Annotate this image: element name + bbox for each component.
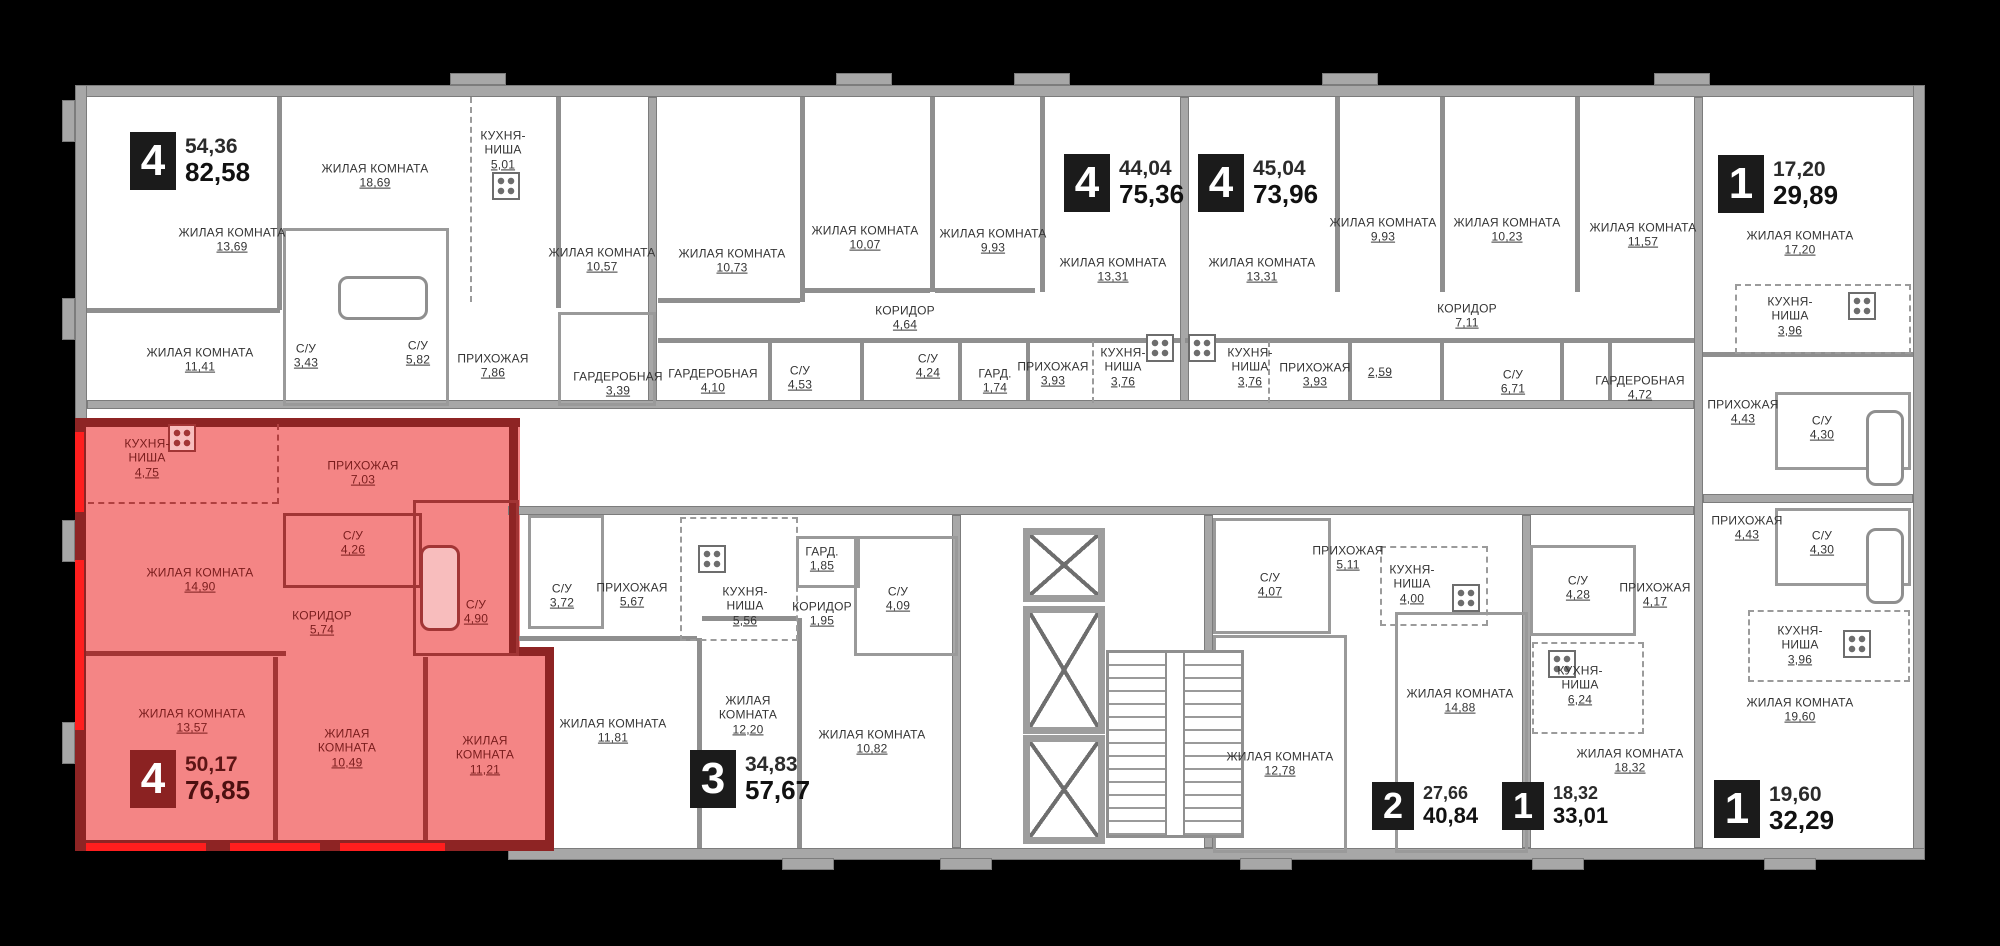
stove-icon (492, 172, 520, 200)
room-area: 5,74 (292, 623, 352, 637)
room-name: С/У (406, 339, 430, 353)
total-area: 57,67 (745, 776, 810, 804)
pilaster (782, 858, 834, 870)
room-area: 5,82 (406, 353, 430, 367)
room-area: 13,57 (138, 721, 245, 735)
pilaster (62, 520, 75, 562)
room-label: С/У4,09 (886, 585, 910, 614)
room-area: 5,01 (470, 157, 536, 171)
total-area: 82,58 (185, 158, 250, 186)
room-name: ПРИХОЖАЯ (1707, 398, 1778, 412)
room-label: С/У4,30 (1810, 529, 1834, 558)
elevator-shaft-icon (1023, 735, 1105, 844)
room-name: С/У (550, 582, 574, 596)
stove-icon (1843, 630, 1871, 658)
room-area: 10,07 (811, 238, 918, 252)
room-label: ЖИЛАЯ КОМНАТА14,88 (1406, 687, 1513, 716)
room-label: ПРИХОЖАЯ5,67 (596, 581, 667, 610)
room-name: ГАРДЕРОБНАЯ (668, 367, 758, 381)
room-name: С/У (464, 598, 488, 612)
room-name: ГАРД. (805, 545, 838, 559)
stove-icon (1452, 584, 1480, 612)
room-label: ЖИЛАЯ КОМНАТА13,31 (1208, 256, 1315, 285)
wall-segment (75, 85, 1925, 97)
total-area: 75,36 (1119, 180, 1184, 208)
room-area: 4,43 (1711, 528, 1782, 542)
room-label: ЖИЛАЯ КОМНАТА12,78 (1226, 750, 1333, 779)
total-area: 33,01 (1553, 804, 1608, 828)
rooms-count-badge: 2 (1372, 782, 1414, 830)
niche-dashed-line (88, 502, 278, 504)
room-name: ЖИЛАЯ КОМНАТА (146, 346, 253, 360)
room-name: ГАРД. (978, 367, 1011, 381)
room-area: 4,90 (464, 612, 488, 626)
room-label: КУХНЯ-НИША5,56 (712, 584, 778, 627)
room-label: ЖИЛАЯ КОМНАТА14,90 (146, 566, 253, 595)
room-area: 5,56 (712, 613, 778, 627)
room-name: ЖИЛАЯ КОМНАТА (1406, 687, 1513, 701)
room-label: КУХНЯ-НИША3,96 (1767, 623, 1833, 666)
room-area: 6,24 (1547, 692, 1613, 706)
highlight-accent-wall (75, 432, 84, 512)
wall-segment (1703, 494, 1913, 503)
pilaster (1240, 858, 1292, 870)
room-area: 10,82 (818, 742, 925, 756)
pilaster (1532, 858, 1584, 870)
wall-segment (658, 338, 1180, 343)
room-label: ЖИЛАЯ КОМНАТА18,32 (1576, 747, 1683, 776)
room-name: КУХНЯ-НИША (1217, 345, 1283, 374)
room-label: ЖИЛАЯ КОМНАТА9,93 (939, 227, 1046, 256)
room-label: КУХНЯ-НИША3,76 (1090, 345, 1156, 388)
room-name: ЖИЛАЯ КОМНАТА (1226, 750, 1333, 764)
room-name: КУХНЯ-НИША (1767, 623, 1833, 652)
room-name: С/У (1566, 574, 1590, 588)
wall-segment (1335, 97, 1340, 292)
room-label: ГАРДЕРОБНАЯ4,72 (1595, 374, 1685, 403)
wall-segment (958, 343, 962, 400)
room-label: ЖИЛАЯ КОМНАТА11,41 (146, 346, 253, 375)
room-area: 18,69 (321, 176, 428, 190)
room-label: ГАРДЕРОБНАЯ4,10 (668, 367, 758, 396)
pilaster (1764, 858, 1816, 870)
room-name: КОРИДОР (292, 609, 352, 623)
room-name: С/У (341, 529, 365, 543)
apartment-badge-H[interactable]: 3 34,8357,67 (690, 750, 810, 808)
room-area: 4,53 (788, 378, 812, 392)
pilaster (1322, 73, 1378, 85)
apartment-badge-A[interactable]: 4 54,3682,58 (130, 132, 250, 190)
room-label: ЖИЛАЯ КОМНАТА18,69 (321, 162, 428, 191)
room-area: 3,76 (1217, 374, 1283, 388)
room-area: 9,93 (939, 241, 1046, 255)
room-name: КУХНЯ-НИША (1379, 562, 1445, 591)
room-name: ПРИХОЖАЯ (1279, 361, 1350, 375)
room-name: ЖИЛАЯ КОМНАТА (138, 707, 245, 721)
rooms-count-badge: 1 (1718, 155, 1764, 213)
room-name: ЖИЛАЯ КОМНАТА (811, 224, 918, 238)
room-label: ГАРДЕРОБНАЯ3,39 (573, 370, 663, 399)
elevator-shaft-icon (1023, 528, 1105, 602)
room-name: ЖИЛАЯ КОМНАТА (178, 226, 285, 240)
room-area: 7,11 (1437, 316, 1497, 330)
staircase-icon (1106, 650, 1244, 838)
room-label: ПРИХОЖАЯ7,03 (327, 459, 398, 488)
living-area: 54,36 (185, 136, 250, 159)
room-area: 4,64 (875, 318, 935, 332)
room-label: С/У4,26 (341, 529, 365, 558)
room-area: 4,26 (341, 543, 365, 557)
room-name: ЖИЛАЯ КОМНАТА (1589, 221, 1696, 235)
apartment-badge-C[interactable]: 4 45,0473,96 (1198, 154, 1318, 212)
room-area: 17,20 (1746, 243, 1853, 257)
room-name: ПРИХОЖАЯ (1312, 544, 1383, 558)
room-area: 7,86 (457, 366, 528, 380)
living-area: 44,04 (1119, 158, 1184, 181)
total-area: 29,89 (1773, 181, 1838, 209)
apartment-badge-G[interactable]: 2 27,6640,84 (1372, 782, 1478, 830)
room-area: 6,71 (1501, 382, 1525, 396)
room-area: 7,03 (327, 473, 398, 487)
stove-icon (698, 545, 726, 573)
room-label: ЖИЛАЯ КОМНАТА10,07 (811, 224, 918, 253)
living-area: 17,20 (1773, 159, 1838, 182)
wall-segment (87, 308, 280, 313)
room-name: С/У (1258, 571, 1282, 585)
room-label: КОРИДОР7,11 (1437, 302, 1497, 331)
pilaster (62, 722, 75, 764)
total-area: 76,85 (185, 776, 250, 804)
highlight-wall (86, 651, 286, 656)
room-label: ЖИЛАЯ КОМНАТА13,31 (1059, 256, 1166, 285)
room-name: ЖИЛАЯ КОМНАТА (1208, 256, 1315, 270)
room-name: С/У (886, 585, 910, 599)
room-label: КУХНЯ-НИША3,76 (1217, 345, 1283, 388)
living-area: 19,60 (1769, 784, 1834, 807)
room-area: 11,41 (146, 360, 253, 374)
room-name: ЖИЛАЯ КОМНАТА (1746, 696, 1853, 710)
room-area: 9,93 (1329, 230, 1436, 244)
room-area: 4,10 (668, 381, 758, 395)
room-name: ЖИЛАЯ КОМНАТА (715, 693, 781, 722)
room-name: ЖИЛАЯ КОМНАТА (321, 162, 428, 176)
wall-segment (930, 97, 935, 292)
room-label: КУХНЯ-НИША4,75 (114, 436, 180, 479)
wall-segment (1440, 343, 1444, 400)
room-area: 1,85 (805, 559, 838, 573)
room-label: КУХНЯ-НИША6,24 (1547, 663, 1613, 706)
room-label: ПРИХОЖАЯ4,17 (1619, 581, 1690, 610)
room-area: 4,72 (1595, 388, 1685, 402)
highlight-accent-wall (230, 843, 320, 851)
room-label: ЖИЛАЯ КОМНАТА10,82 (818, 728, 925, 757)
room-name: ЖИЛАЯ КОМНАТА (1059, 256, 1166, 270)
room-area: 13,69 (178, 240, 285, 254)
apartment-badge-D[interactable]: 1 17,2029,89 (1718, 155, 1838, 213)
room-label: С/У6,71 (1501, 368, 1525, 397)
rooms-count-badge: 4 (1198, 154, 1244, 212)
wall-segment (556, 97, 561, 308)
room-name: ЖИЛАЯ КОМНАТА (548, 246, 655, 260)
room-label: С/У4,07 (1258, 571, 1282, 600)
staircase-divider (1165, 653, 1185, 835)
wall-segment (800, 97, 805, 302)
room-area: 1,74 (978, 381, 1011, 395)
room-label: С/У4,53 (788, 364, 812, 393)
total-area: 73,96 (1253, 180, 1318, 208)
room-label: КУХНЯ-НИША4,00 (1379, 562, 1445, 605)
room-area: 13,31 (1208, 270, 1315, 284)
room-name: КУХНЯ-НИША (1090, 345, 1156, 374)
pilaster (62, 100, 75, 142)
room-area: 5,67 (596, 595, 667, 609)
room-label: КОРИДОР5,74 (292, 609, 352, 638)
room-label: ЖИЛАЯ КОМНАТА10,23 (1453, 216, 1560, 245)
room-area: 11,21 (452, 762, 518, 776)
pilaster (836, 73, 892, 85)
room-name: ЖИЛАЯ КОМНАТА (1576, 747, 1683, 761)
room-label: С/У4,24 (916, 352, 940, 381)
room-name: ГАРДЕРОБНАЯ (573, 370, 663, 384)
highlight-accent-wall (340, 843, 445, 851)
room-name: С/У (1810, 529, 1834, 543)
room-area: 10,57 (548, 260, 655, 274)
room-area: 12,20 (715, 722, 781, 736)
living-area: 50,17 (185, 754, 250, 777)
highlight-wall (545, 647, 554, 851)
wall-segment (805, 288, 930, 293)
room-label: КОРИДОР4,64 (875, 304, 935, 333)
room-area: 3,93 (1279, 375, 1350, 389)
pilaster (62, 298, 75, 340)
wall-segment (277, 97, 282, 310)
wall-segment (515, 636, 697, 641)
elevator-shaft-icon (1023, 606, 1105, 734)
room-label: С/У4,28 (1566, 574, 1590, 603)
room-label: ПРИХОЖАЯ3,93 (1279, 361, 1350, 390)
room-name: ЖИЛАЯ КОМНАТА (559, 717, 666, 731)
room-label: ПРИХОЖАЯ4,43 (1707, 398, 1778, 427)
room-area: 12,78 (1226, 764, 1333, 778)
rooms-count-badge: 1 (1502, 782, 1544, 830)
room-label: ЖИЛАЯ КОМНАТА11,57 (1589, 221, 1696, 250)
room-label: С/У4,90 (464, 598, 488, 627)
room-area: 10,73 (678, 261, 785, 275)
highlight-accent-wall (75, 560, 84, 730)
room-area: 3,96 (1757, 323, 1823, 337)
room-label: ЖИЛАЯ КОМНАТА10,73 (678, 247, 785, 276)
room-label: ЖИЛАЯ КОМНАТА12,20 (715, 693, 781, 736)
stove-icon (1188, 334, 1216, 362)
room-label: ПРИХОЖАЯ3,93 (1017, 360, 1088, 389)
room-name: ЖИЛАЯ КОМНАТА (678, 247, 785, 261)
room-area: 4,75 (114, 465, 180, 479)
wall-segment (75, 85, 87, 422)
room-label: ПРИХОЖАЯ5,11 (1312, 544, 1383, 573)
room-area: 3,43 (294, 356, 318, 370)
room-name: ЖИЛАЯ КОМНАТА (314, 726, 380, 755)
room-label: С/У5,82 (406, 339, 430, 368)
wall-segment (1040, 97, 1045, 292)
room-area: 13,31 (1059, 270, 1166, 284)
room-area: 4,17 (1619, 595, 1690, 609)
apartment-badge-F[interactable]: 1 18,3233,01 (1502, 782, 1608, 830)
room-label: КОРИДОР1,95 (792, 600, 852, 629)
room-name: КУХНЯ-НИША (470, 128, 536, 157)
room-area: 5,11 (1312, 558, 1383, 572)
total-area: 40,84 (1423, 804, 1478, 828)
wall-segment (797, 618, 802, 848)
room-area: 3,39 (573, 384, 663, 398)
room-name: ПРИХОЖАЯ (596, 581, 667, 595)
room-name: ЖИЛАЯ КОМНАТА (452, 733, 518, 762)
room-area: 1,95 (792, 614, 852, 628)
highlight-wall (273, 657, 278, 840)
room-name: С/У (294, 342, 318, 356)
room-name: КУХНЯ-НИША (1757, 294, 1823, 323)
living-area: 27,66 (1423, 784, 1478, 803)
room-area: 18,32 (1576, 761, 1683, 775)
highlight-wall (423, 657, 428, 840)
room-label: ЖИЛАЯ КОМНАТА9,93 (1329, 216, 1436, 245)
wall-segment (1560, 343, 1564, 400)
rooms-count-badge: 4 (130, 750, 176, 808)
room-label: ЖИЛАЯ КОМНАТА10,57 (548, 246, 655, 275)
bathtub-icon (1866, 528, 1904, 604)
apartment-badge-E[interactable]: 1 19,6032,29 (1714, 780, 1834, 838)
bathtub-icon (338, 276, 428, 320)
room-label: ЖИЛАЯ КОМНАТА13,57 (138, 707, 245, 736)
wall-segment (768, 343, 772, 400)
room-area: 4,30 (1810, 543, 1834, 557)
room-name: КУХНЯ-НИША (1547, 663, 1613, 692)
room-area: 10,49 (314, 755, 380, 769)
room-area: 4,09 (886, 599, 910, 613)
room-name: ПРИХОЖАЯ (1711, 514, 1782, 528)
room-label: С/У3,72 (550, 582, 574, 611)
living-area: 34,83 (745, 754, 810, 777)
pilaster (450, 73, 506, 85)
room-label: ЖИЛАЯ КОМНАТА17,20 (1746, 229, 1853, 258)
room-name: ПРИХОЖАЯ (327, 459, 398, 473)
room-area: 10,23 (1453, 230, 1560, 244)
wall-segment (935, 288, 1035, 293)
wall-segment (658, 298, 800, 303)
wall-segment (508, 506, 1694, 515)
apartment-badge-B[interactable]: 4 44,0475,36 (1064, 154, 1184, 212)
room-name: КОРИДОР (875, 304, 935, 318)
room-label: ГАРД.1,74 (978, 367, 1011, 396)
room-name: КУХНЯ-НИША (712, 584, 778, 613)
room-name: КУХНЯ-НИША (114, 436, 180, 465)
wall-segment (697, 638, 702, 848)
room-name: КОРИДОР (1437, 302, 1497, 316)
room-label: ЖИЛАЯ КОМНАТА19,60 (1746, 696, 1853, 725)
room-label: ЖИЛАЯ КОМНАТА11,21 (452, 733, 518, 776)
stove-icon (1848, 292, 1876, 320)
room-name: С/У (1501, 368, 1525, 382)
room-name: ЖИЛАЯ КОМНАТА (818, 728, 925, 742)
bathtub-icon (1866, 410, 1904, 486)
living-area: 45,04 (1253, 158, 1318, 181)
room-name: ЖИЛАЯ КОМНАТА (146, 566, 253, 580)
wall-segment (1440, 97, 1445, 292)
room-area: 3,76 (1090, 374, 1156, 388)
room-label: ЖИЛАЯ КОМНАТА11,81 (559, 717, 666, 746)
room-label: ЖИЛАЯ КОМНАТА13,69 (178, 226, 285, 255)
pilaster (940, 858, 992, 870)
room-area: 3,96 (1767, 652, 1833, 666)
room-area: 4,28 (1566, 588, 1590, 602)
room-area: 14,88 (1406, 701, 1513, 715)
room-area: 4,30 (1810, 428, 1834, 442)
room-area: 4,43 (1707, 412, 1778, 426)
total-area: 32,29 (1769, 806, 1834, 834)
room-area: 2,59 (1368, 365, 1392, 379)
pilaster (1654, 73, 1710, 85)
room-area: 4,24 (916, 366, 940, 380)
room-area: 19,60 (1746, 710, 1853, 724)
room-label: ПРИХОЖАЯ7,86 (457, 352, 528, 381)
pilaster (1014, 73, 1070, 85)
room-name: ПРИХОЖАЯ (1017, 360, 1088, 374)
wall-segment (1694, 97, 1703, 848)
room-name: ЖИЛАЯ КОМНАТА (1453, 216, 1560, 230)
floor-plan: ЖИЛАЯ КОМНАТА13,69 ЖИЛАЯ КОМНАТА18,69 КУ… (0, 0, 2000, 946)
room-area: 4,07 (1258, 585, 1282, 599)
room-label: ПРИХОЖАЯ4,43 (1711, 514, 1782, 543)
bathtub-icon (420, 545, 460, 631)
wall-segment (1913, 85, 1925, 860)
room-label: КУХНЯ-НИША5,01 (470, 128, 536, 171)
wall-segment (860, 343, 864, 400)
rooms-count-badge: 3 (690, 750, 736, 808)
room-name: С/У (916, 352, 940, 366)
bathroom-walls (528, 515, 604, 629)
room-name: ЖИЛАЯ КОМНАТА (1746, 229, 1853, 243)
room-name: ЖИЛАЯ КОМНАТА (1329, 216, 1436, 230)
room-label: ЖИЛАЯ КОМНАТА10,49 (314, 726, 380, 769)
living-area: 18,32 (1553, 784, 1608, 803)
room-label: 2,59 (1368, 365, 1392, 379)
room-name: КОРИДОР (792, 600, 852, 614)
room-label: ГАРД.1,85 (805, 545, 838, 574)
room-area: 11,81 (559, 731, 666, 745)
highlight-accent-wall (86, 843, 206, 851)
room-area: 3,93 (1017, 374, 1088, 388)
highlight-wall (75, 418, 520, 427)
room-label: С/У4,30 (1810, 414, 1834, 443)
room-area: 11,57 (1589, 235, 1696, 249)
room-label: КУХНЯ-НИША3,96 (1757, 294, 1823, 337)
rooms-count-badge: 4 (130, 132, 176, 190)
rooms-count-badge: 1 (1714, 780, 1760, 838)
rooms-count-badge: 4 (1064, 154, 1110, 212)
room-name: С/У (788, 364, 812, 378)
room-area: 3,72 (550, 596, 574, 610)
wall-segment (1575, 97, 1580, 292)
room-name: С/У (1810, 414, 1834, 428)
apartment-badge-selected[interactable]: 4 50,1776,85 (130, 750, 250, 808)
room-area: 4,00 (1379, 591, 1445, 605)
room-name: ГАРДЕРОБНАЯ (1595, 374, 1685, 388)
room-name: ПРИХОЖАЯ (1619, 581, 1690, 595)
room-area: 14,90 (146, 580, 253, 594)
room-name: ПРИХОЖАЯ (457, 352, 528, 366)
niche-dashed-line (277, 424, 279, 504)
room-label: С/У3,43 (294, 342, 318, 371)
room-name: ЖИЛАЯ КОМНАТА (939, 227, 1046, 241)
